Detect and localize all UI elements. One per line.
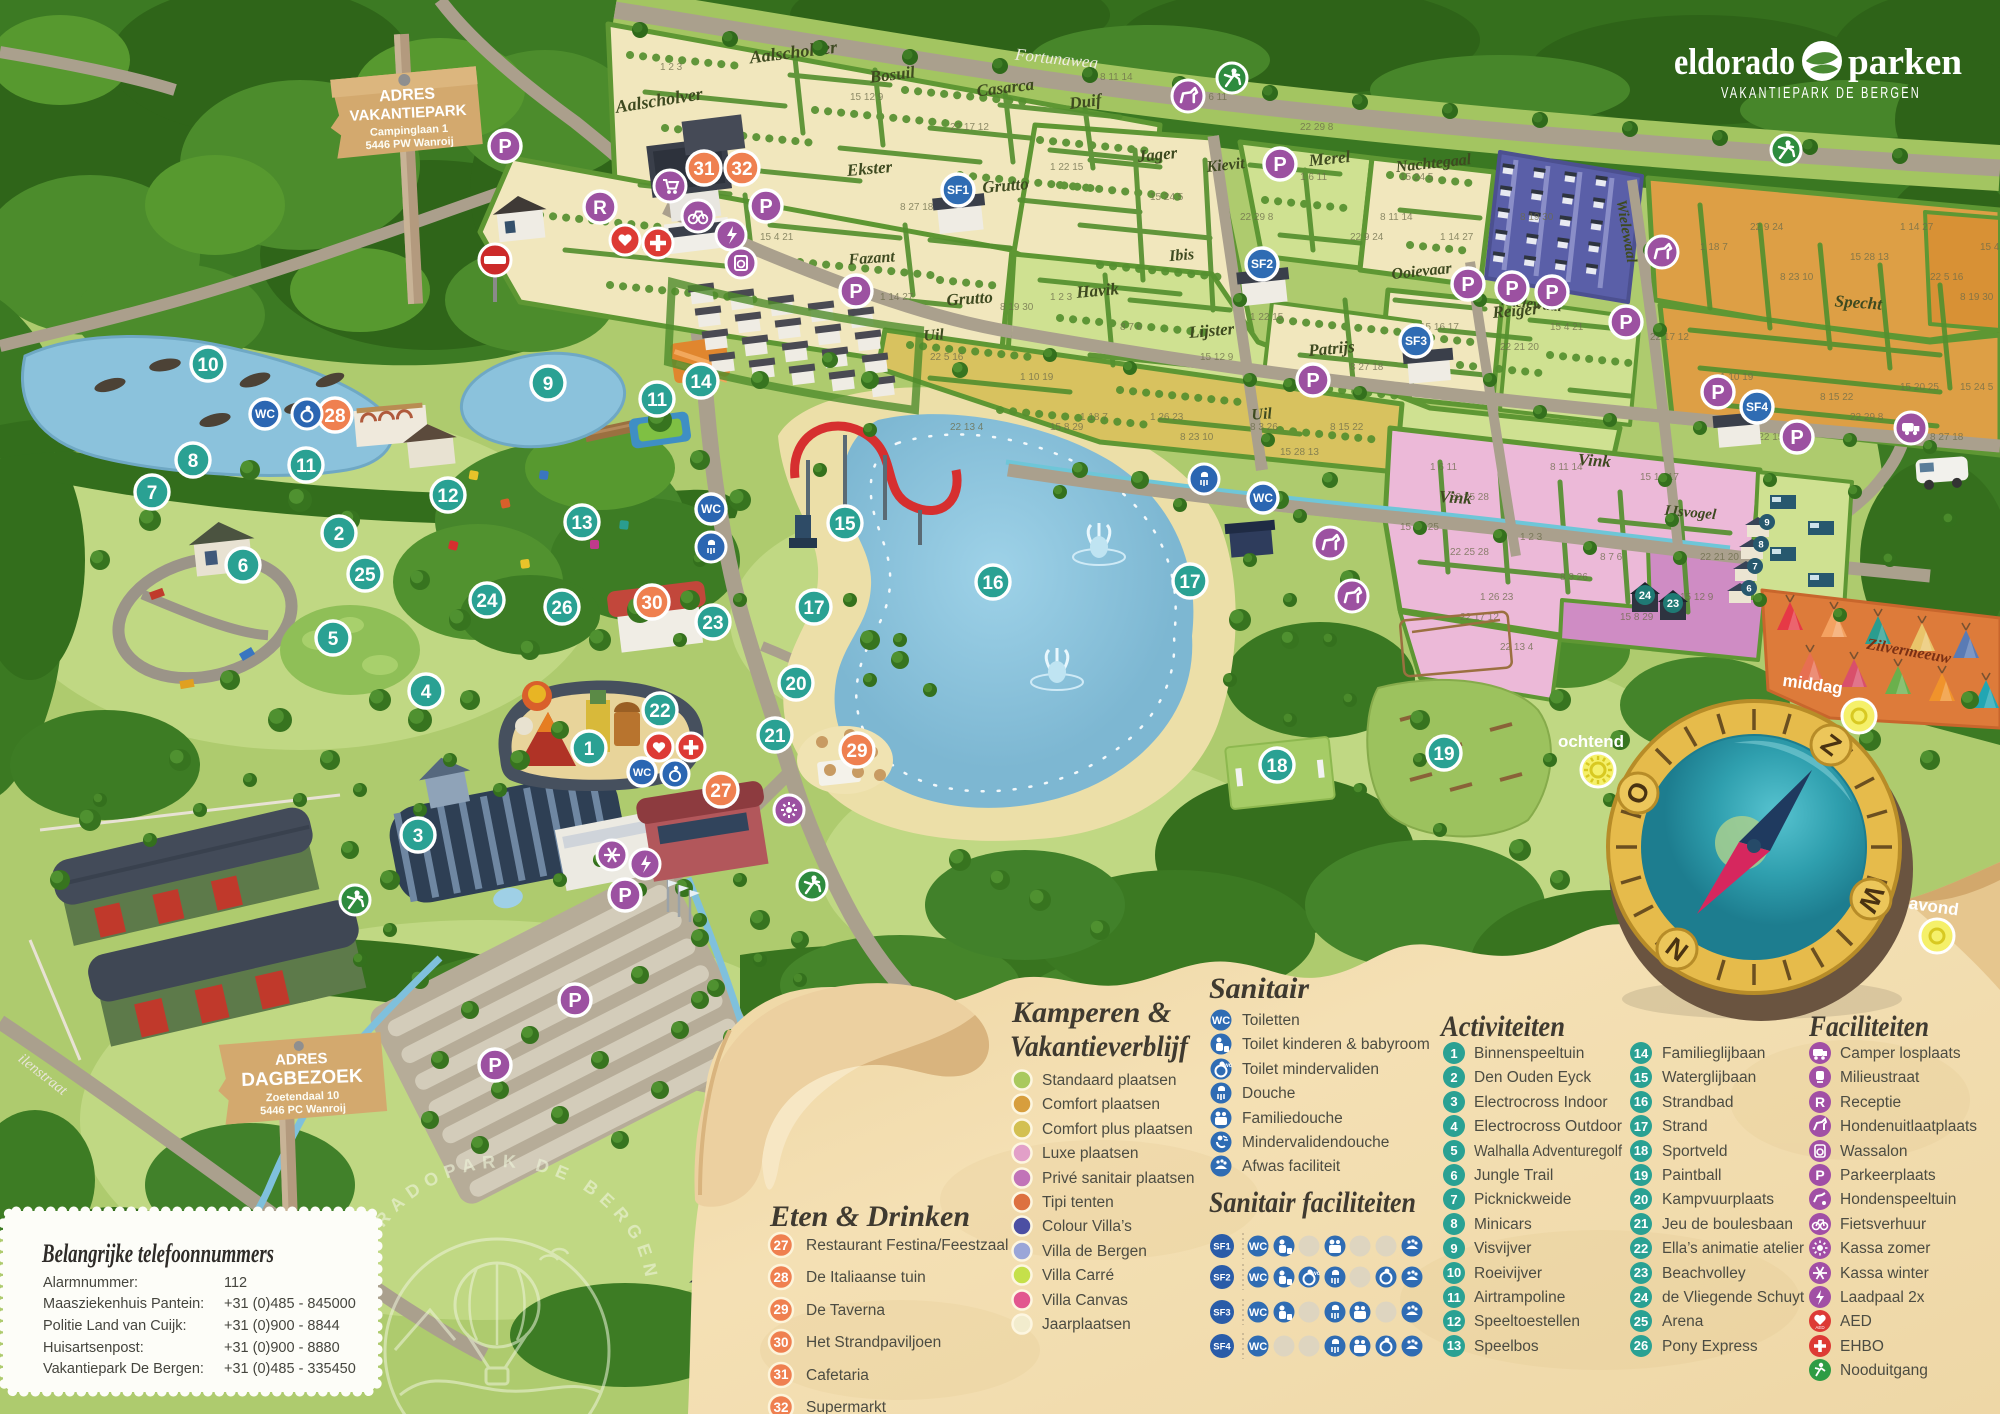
svg-text:Milieustraat: Milieustraat: [1840, 1069, 1920, 1086]
svg-text:6: 6: [1450, 1168, 1457, 1183]
svg-text:Picknickweide: Picknickweide: [1474, 1191, 1571, 1208]
svg-text:Comfort plaatsen: Comfort plaatsen: [1042, 1096, 1160, 1113]
svg-text:12: 12: [1447, 1314, 1461, 1329]
svg-text:9: 9: [1764, 518, 1769, 529]
svg-text:15 8 29: 15 8 29: [1050, 422, 1084, 433]
svg-text:22 9 24: 22 9 24: [1350, 232, 1384, 243]
svg-text:17: 17: [1634, 1119, 1648, 1134]
svg-text:Villa Canvas: Villa Canvas: [1042, 1292, 1128, 1309]
svg-text:Belangrijke telefoonnummers: Belangrijke telefoonnummers: [41, 1239, 274, 1268]
svg-text:16: 16: [982, 573, 1003, 594]
svg-text:P: P: [849, 281, 862, 303]
svg-text:1 14 27: 1 14 27: [880, 292, 914, 303]
svg-text:1 14 27: 1 14 27: [1440, 232, 1474, 243]
svg-text:+31 (0)485 - 845000: +31 (0)485 - 845000: [224, 1296, 356, 1312]
svg-text:18: 18: [1634, 1143, 1648, 1158]
svg-text:6: 6: [238, 556, 249, 577]
svg-text:7: 7: [147, 483, 158, 504]
svg-text:19: 19: [1634, 1168, 1648, 1183]
svg-text:13: 13: [571, 513, 592, 534]
svg-text:8 15 22: 8 15 22: [1820, 392, 1854, 403]
svg-text:22 21 20: 22 21 20: [1700, 552, 1739, 563]
svg-text:P: P: [1505, 278, 1518, 300]
svg-text:Toiletten: Toiletten: [1242, 1012, 1300, 1029]
svg-text:15 12 9: 15 12 9: [850, 92, 884, 103]
svg-text:Walhalla Adventuregolf: Walhalla Adventuregolf: [1474, 1143, 1623, 1160]
svg-text:SF1: SF1: [1213, 1242, 1231, 1253]
svg-text:P: P: [488, 1055, 501, 1077]
svg-text:28: 28: [324, 406, 345, 427]
svg-text:parken: parken: [1848, 42, 1962, 83]
svg-text:23: 23: [1667, 598, 1679, 610]
svg-text:2: 2: [334, 524, 345, 545]
svg-text:Privé sanitair plaatsen: Privé sanitair plaatsen: [1042, 1170, 1195, 1187]
svg-text:23: 23: [702, 613, 723, 634]
svg-text:SF2: SF2: [1213, 1273, 1230, 1284]
svg-text:Jaarplaatsen: Jaarplaatsen: [1042, 1316, 1131, 1333]
svg-text:Jungle Trail: Jungle Trail: [1474, 1167, 1553, 1184]
svg-text:3: 3: [1450, 1094, 1457, 1109]
svg-text:WC: WC: [1212, 1015, 1230, 1027]
svg-text:Mindervalidendouche: Mindervalidendouche: [1242, 1134, 1389, 1151]
svg-text:Receptie: Receptie: [1840, 1094, 1901, 1111]
svg-text:20: 20: [785, 674, 806, 695]
svg-text:Sanitair faciliteiten: Sanitair faciliteiten: [1209, 1186, 1416, 1219]
svg-text:15 28 13: 15 28 13: [1850, 252, 1889, 263]
svg-text:Uil: Uil: [923, 326, 945, 344]
svg-text:+31 (0)900 - 8844: +31 (0)900 - 8844: [224, 1318, 340, 1334]
svg-text:Speelbos: Speelbos: [1474, 1338, 1539, 1355]
svg-text:P: P: [1545, 282, 1558, 304]
svg-text:14: 14: [690, 372, 712, 393]
svg-text:9: 9: [1450, 1241, 1457, 1256]
svg-text:29: 29: [773, 1302, 788, 1317]
svg-text:8 11 14: 8 11 14: [1100, 72, 1133, 83]
svg-text:5: 5: [328, 629, 339, 650]
svg-text:15 12 9: 15 12 9: [1200, 352, 1234, 363]
svg-text:Roeivijver: Roeivijver: [1474, 1265, 1542, 1282]
svg-text:23: 23: [1634, 1265, 1648, 1280]
svg-text:15 4 21: 15 4 21: [1550, 322, 1584, 333]
svg-text:8: 8: [1450, 1216, 1457, 1231]
svg-text:1 22 15: 1 22 15: [1050, 162, 1084, 173]
svg-text:Jeu de boulesbaan: Jeu de boulesbaan: [1662, 1216, 1793, 1233]
svg-text:112: 112: [224, 1275, 247, 1291]
svg-text:P: P: [568, 990, 581, 1012]
svg-text:Binnenspeeltuin: Binnenspeeltuin: [1474, 1045, 1584, 1062]
svg-text:15 24 5: 15 24 5: [1150, 192, 1184, 203]
svg-text:1 26 23: 1 26 23: [1150, 412, 1184, 423]
svg-text:SF4: SF4: [1213, 1342, 1231, 1353]
svg-text:15 20 25: 15 20 25: [1900, 382, 1939, 393]
svg-text:eldorado: eldorado: [1674, 42, 1795, 83]
svg-text:5: 5: [1450, 1143, 1457, 1158]
svg-text:20: 20: [1634, 1192, 1648, 1207]
svg-text:ADRES: ADRES: [275, 1050, 328, 1069]
svg-text:SF4: SF4: [1746, 400, 1768, 414]
svg-text:Hondenspeeltuin: Hondenspeeltuin: [1840, 1191, 1956, 1208]
svg-text:1 22 15: 1 22 15: [1250, 312, 1284, 323]
svg-text:18: 18: [1266, 756, 1287, 777]
svg-text:8 23 10: 8 23 10: [1780, 272, 1814, 283]
svg-text:Sanitair: Sanitair: [1209, 972, 1309, 1005]
svg-text:11: 11: [296, 456, 317, 477]
svg-text:30: 30: [773, 1335, 788, 1350]
svg-text:WC: WC: [1249, 1307, 1267, 1319]
svg-text:32: 32: [731, 159, 752, 180]
svg-text:Specht: Specht: [1834, 291, 1884, 313]
svg-text:WC: WC: [1249, 1241, 1267, 1253]
svg-text:Strand: Strand: [1662, 1118, 1708, 1135]
svg-text:Waterglijbaan: Waterglijbaan: [1662, 1069, 1756, 1086]
svg-text:24: 24: [1639, 590, 1652, 602]
svg-text:22 5 16: 22 5 16: [1930, 272, 1964, 283]
svg-text:1: 1: [1450, 1046, 1457, 1061]
svg-text:Ibis: Ibis: [1167, 246, 1194, 265]
svg-text:22 5 16: 22 5 16: [930, 352, 964, 363]
svg-text:Villa de Bergen: Villa de Bergen: [1042, 1243, 1147, 1260]
svg-text:1 2 3: 1 2 3: [1050, 292, 1073, 303]
svg-text:WC: WC: [1249, 1272, 1267, 1284]
svg-text:SF3: SF3: [1405, 334, 1427, 348]
svg-text:17: 17: [803, 598, 824, 619]
svg-text:wc: wc: [1223, 1063, 1233, 1069]
svg-text:22: 22: [649, 701, 670, 722]
svg-text:21: 21: [764, 726, 786, 747]
svg-text:Alarmnummer:: Alarmnummer:: [43, 1275, 138, 1291]
svg-text:1 26 23: 1 26 23: [1480, 592, 1514, 603]
svg-text:DAGBEZOEK: DAGBEZOEK: [241, 1066, 363, 1091]
svg-text:1 6 11: 1 6 11: [1430, 462, 1457, 473]
svg-text:Zoetendaal 10: Zoetendaal 10: [266, 1090, 340, 1105]
svg-text:R: R: [593, 198, 607, 219]
svg-text:11: 11: [1447, 1290, 1461, 1305]
svg-text:Toilet mindervaliden: Toilet mindervaliden: [1242, 1061, 1379, 1078]
svg-text:8 19 30: 8 19 30: [1960, 292, 1994, 303]
svg-text:15 24 5: 15 24 5: [1960, 382, 1994, 393]
svg-text:Familieglijbaan: Familieglijbaan: [1662, 1045, 1765, 1062]
svg-text:Ekster: Ekster: [845, 157, 893, 180]
svg-text:Strandbad: Strandbad: [1662, 1094, 1734, 1111]
svg-text:22 25 28: 22 25 28: [1450, 547, 1489, 558]
svg-text:de Vliegende Schuyt: de Vliegende Schuyt: [1662, 1289, 1805, 1306]
svg-text:Politie Land van Cuijk:: Politie Land van Cuijk:: [43, 1318, 186, 1334]
svg-text:25: 25: [1634, 1314, 1648, 1329]
svg-text:13: 13: [1447, 1338, 1461, 1353]
svg-text:6: 6: [1746, 584, 1751, 595]
svg-text:Luxe plaatsen: Luxe plaatsen: [1042, 1145, 1139, 1162]
svg-text:26: 26: [1634, 1338, 1648, 1353]
svg-text:Restaurant Festina/Feestzaal: Restaurant Festina/Feestzaal: [806, 1237, 1008, 1254]
svg-text:11: 11: [647, 390, 668, 411]
svg-text:22 13 4: 22 13 4: [950, 422, 984, 433]
svg-text:32: 32: [773, 1400, 788, 1414]
svg-text:Paintball: Paintball: [1662, 1167, 1721, 1184]
svg-text:22 17 12: 22 17 12: [950, 122, 989, 133]
svg-text:1 10 19: 1 10 19: [1020, 372, 1054, 383]
svg-text:Standaard plaatsen: Standaard plaatsen: [1042, 1072, 1176, 1089]
svg-text:Vink: Vink: [1577, 450, 1612, 471]
svg-text:1 18 7: 1 18 7: [1080, 412, 1108, 423]
svg-text:24: 24: [1634, 1290, 1649, 1305]
svg-text:14: 14: [1634, 1046, 1649, 1061]
svg-text:8 3 26: 8 3 26: [1560, 572, 1588, 583]
svg-text:Uil: Uil: [1251, 405, 1273, 423]
svg-text:Wassalon: Wassalon: [1840, 1143, 1907, 1160]
svg-text:24: 24: [476, 591, 498, 612]
svg-text:15 4 21: 15 4 21: [760, 232, 794, 243]
svg-text:P: P: [498, 136, 511, 158]
svg-text:ADRES: ADRES: [379, 85, 436, 105]
svg-text:8 19 30: 8 19 30: [1000, 302, 1034, 313]
svg-text:Laadpaal 2x: Laadpaal 2x: [1840, 1289, 1925, 1306]
svg-text:28: 28: [773, 1270, 789, 1285]
svg-text:8 3 26: 8 3 26: [1250, 422, 1278, 433]
svg-text:Kassa winter: Kassa winter: [1840, 1265, 1929, 1282]
svg-text:2: 2: [1450, 1070, 1457, 1085]
svg-text:P: P: [759, 196, 772, 218]
svg-text:Airtrampoline: Airtrampoline: [1474, 1289, 1565, 1306]
svg-text:8 7 6: 8 7 6: [1120, 322, 1143, 333]
svg-text:1 6 11: 1 6 11: [1300, 172, 1327, 183]
svg-text:WC: WC: [701, 502, 721, 516]
svg-text:Afwas faciliteit: Afwas faciliteit: [1242, 1158, 1341, 1175]
svg-text:Supermarkt: Supermarkt: [806, 1399, 887, 1414]
svg-text:Pony Express: Pony Express: [1662, 1338, 1758, 1355]
svg-text:19: 19: [1433, 744, 1454, 765]
svg-text:31: 31: [693, 159, 715, 180]
svg-text:Electrocross Outdoor: Electrocross Outdoor: [1474, 1118, 1622, 1135]
svg-text:Nooduitgang: Nooduitgang: [1840, 1362, 1928, 1379]
svg-text:8 11 14: 8 11 14: [1380, 212, 1413, 223]
svg-text:4: 4: [1450, 1119, 1458, 1134]
svg-text:3: 3: [413, 826, 424, 847]
svg-text:15: 15: [834, 514, 856, 535]
svg-text:21: 21: [1634, 1216, 1648, 1231]
svg-text:Maasziekenhuis Pantein:: Maasziekenhuis Pantein:: [43, 1296, 204, 1312]
svg-text:Visvijver: Visvijver: [1474, 1240, 1531, 1257]
svg-text:12: 12: [437, 486, 458, 507]
svg-text:Lijster: Lijster: [1187, 319, 1235, 342]
svg-text:Ella’s animatie atelier: Ella’s animatie atelier: [1662, 1240, 1804, 1257]
svg-text:ochtend: ochtend: [1558, 732, 1624, 751]
svg-text:17: 17: [1179, 572, 1200, 593]
svg-text:Minicars: Minicars: [1474, 1216, 1532, 1233]
svg-text:16: 16: [1634, 1094, 1648, 1109]
svg-text:15 8 29: 15 8 29: [1620, 612, 1654, 623]
svg-text:15 28 13: 15 28 13: [1280, 447, 1319, 458]
svg-text:15: 15: [1634, 1070, 1648, 1085]
svg-text:P: P: [1815, 1167, 1824, 1183]
svg-text:AED: AED: [1840, 1313, 1872, 1330]
svg-text:P: P: [1711, 382, 1724, 404]
svg-text:Fazant: Fazant: [847, 248, 896, 268]
svg-text:De Taverna: De Taverna: [806, 1302, 885, 1319]
svg-text:P: P: [1790, 427, 1803, 449]
svg-text:Colour Villa’s: Colour Villa’s: [1042, 1218, 1132, 1235]
svg-text:25: 25: [354, 565, 376, 586]
svg-text:8 23 10: 8 23 10: [1180, 432, 1214, 443]
svg-text:Vakantieverblijf: Vakantieverblijf: [1010, 1030, 1191, 1063]
svg-text:27: 27: [773, 1238, 788, 1253]
svg-text:Douche: Douche: [1242, 1085, 1295, 1102]
svg-text:P: P: [1306, 370, 1319, 392]
svg-text:Huisartsenpost:: Huisartsenpost:: [43, 1340, 144, 1356]
svg-text:P: P: [618, 885, 631, 907]
svg-text:Parkeerplaats: Parkeerplaats: [1840, 1167, 1936, 1184]
svg-text:26: 26: [551, 598, 572, 619]
svg-text:Activiteiten: Activiteiten: [1439, 1010, 1565, 1043]
svg-text:P: P: [1619, 312, 1632, 334]
svg-text:8 19 30: 8 19 30: [1520, 212, 1554, 223]
svg-text:WC: WC: [255, 407, 275, 421]
svg-text:Camper losplaats: Camper losplaats: [1840, 1045, 1961, 1062]
svg-text:Kassa zomer: Kassa zomer: [1840, 1240, 1930, 1257]
svg-text:Familiedouche: Familiedouche: [1242, 1110, 1343, 1127]
svg-text:7: 7: [1450, 1192, 1457, 1207]
svg-text:P: P: [1273, 154, 1286, 176]
svg-text:22 29 8: 22 29 8: [1240, 212, 1274, 223]
svg-text:7: 7: [1752, 562, 1757, 573]
svg-text:Den Ouden Eyck: Den Ouden Eyck: [1474, 1069, 1591, 1086]
svg-text:1 18 7: 1 18 7: [1700, 242, 1728, 253]
svg-text:22: 22: [1634, 1241, 1648, 1256]
svg-text:Het Strandpaviljoen: Het Strandpaviljoen: [806, 1334, 941, 1351]
svg-text:SF1: SF1: [947, 183, 969, 197]
svg-text:WC: WC: [633, 767, 651, 779]
svg-text:Arena: Arena: [1662, 1313, 1704, 1330]
svg-text:30: 30: [641, 593, 662, 614]
svg-text:15 4 21: 15 4 21: [1980, 242, 2000, 253]
svg-text:22 9 24: 22 9 24: [1750, 222, 1784, 233]
svg-text:22 29 8: 22 29 8: [1300, 122, 1334, 133]
svg-text:1 2 3: 1 2 3: [1520, 532, 1543, 543]
svg-text:Villa Carré: Villa Carré: [1042, 1267, 1114, 1284]
svg-text:Comfort plus plaatsen: Comfort plus plaatsen: [1042, 1121, 1193, 1138]
svg-text:Electrocross Indoor: Electrocross Indoor: [1474, 1094, 1608, 1111]
svg-text:wc: wc: [1311, 1271, 1321, 1277]
svg-text:8: 8: [1758, 540, 1763, 551]
svg-text:27: 27: [710, 781, 731, 802]
svg-text:Cafetaria: Cafetaria: [806, 1367, 869, 1384]
svg-text:Sportveld: Sportveld: [1662, 1143, 1727, 1160]
svg-text:8 27 18: 8 27 18: [1930, 432, 1964, 443]
svg-text:22 29 8: 22 29 8: [1850, 412, 1884, 423]
svg-text:29: 29: [846, 741, 867, 762]
svg-text:10: 10: [197, 355, 218, 376]
svg-text:1 14 27: 1 14 27: [1900, 222, 1934, 233]
svg-text:Vakantiepark De Bergen:: Vakantiepark De Bergen:: [43, 1361, 204, 1377]
svg-text:P: P: [1461, 274, 1474, 296]
svg-text:De Italiaanse tuin: De Italiaanse tuin: [806, 1269, 926, 1286]
svg-text:VAKANTIEPARK DE BERGEN: VAKANTIEPARK DE BERGEN: [1721, 85, 1921, 102]
svg-text:Havik: Havik: [1075, 279, 1120, 302]
svg-text:R: R: [1815, 1094, 1825, 1110]
svg-text:Kampvuurplaats: Kampvuurplaats: [1662, 1191, 1774, 1208]
svg-text:8 15 22: 8 15 22: [1330, 422, 1364, 433]
svg-text:8 27 18: 8 27 18: [1350, 362, 1384, 373]
svg-text:Fietsverhuur: Fietsverhuur: [1840, 1216, 1926, 1233]
svg-text:Eten & Drinken: Eten & Drinken: [769, 1200, 970, 1233]
svg-text:WC: WC: [1249, 1341, 1267, 1353]
svg-text:1: 1: [584, 739, 595, 760]
svg-text:SF2: SF2: [1251, 257, 1273, 271]
svg-text:Tipi tenten: Tipi tenten: [1042, 1194, 1114, 1211]
svg-text:Grutto: Grutto: [946, 287, 994, 309]
svg-text:Grutto: Grutto: [982, 174, 1030, 197]
svg-text:EHBO: EHBO: [1840, 1338, 1884, 1355]
svg-text:Kamperen &: Kamperen &: [1011, 996, 1171, 1029]
svg-text:+31 (0)900 - 8880: +31 (0)900 - 8880: [224, 1340, 340, 1356]
svg-text:22 21 20: 22 21 20: [1500, 342, 1539, 353]
svg-text:8 27 18: 8 27 18: [900, 202, 934, 213]
svg-text:1 2 3: 1 2 3: [660, 62, 683, 73]
svg-text:AED: AED: [1815, 1325, 1825, 1330]
svg-text:SF3: SF3: [1213, 1308, 1230, 1319]
svg-text:Hondenuitlaatplaats: Hondenuitlaatplaats: [1840, 1118, 1977, 1135]
svg-text:Toilet kinderen & babyroom: Toilet kinderen & babyroom: [1242, 1036, 1430, 1053]
svg-text:Speeltoestellen: Speeltoestellen: [1474, 1313, 1580, 1330]
svg-text:8 7 6: 8 7 6: [1600, 552, 1623, 563]
svg-text:WC: WC: [1253, 491, 1273, 505]
svg-text:10: 10: [1447, 1265, 1461, 1280]
svg-text:+31 (0)485 - 335450: +31 (0)485 - 335450: [224, 1361, 356, 1377]
svg-text:8: 8: [188, 451, 199, 472]
svg-text:4: 4: [421, 682, 432, 703]
svg-text:31: 31: [773, 1367, 789, 1382]
svg-text:Beachvolley: Beachvolley: [1662, 1265, 1746, 1282]
svg-text:22 13 4: 22 13 4: [1500, 642, 1534, 653]
svg-text:Vink: Vink: [1438, 487, 1473, 508]
svg-text:9: 9: [543, 374, 554, 395]
